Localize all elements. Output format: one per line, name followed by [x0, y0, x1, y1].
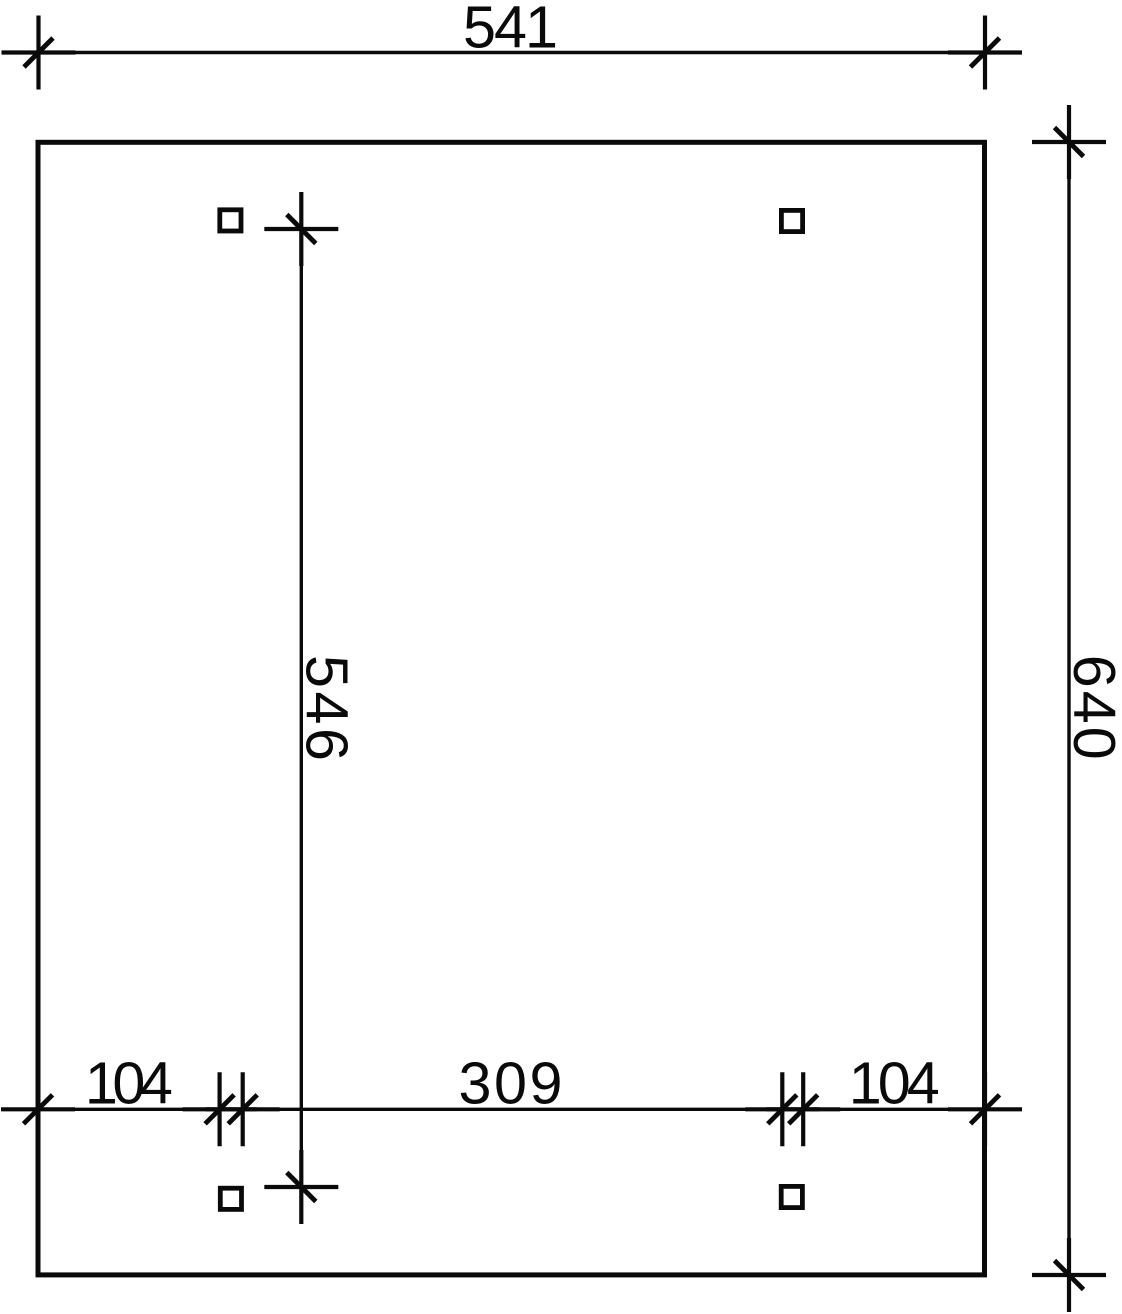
svg-text:104: 104: [85, 1050, 173, 1117]
svg-text:309: 309: [459, 1050, 563, 1117]
svg-text:546: 546: [294, 655, 361, 761]
svg-text:640: 640: [1061, 655, 1122, 760]
svg-text:104: 104: [849, 1050, 940, 1117]
svg-text:541: 541: [463, 0, 558, 61]
